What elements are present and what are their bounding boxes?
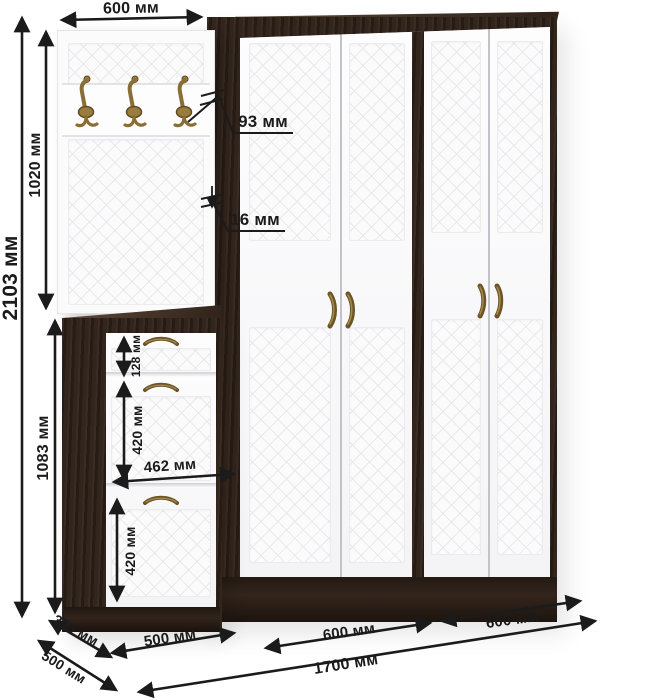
product-diagram: 600 мм 2103 мм 1020 мм 1083 мм 93 мм 16 …	[0, 0, 648, 700]
dim-panel-height: 1020 мм	[27, 132, 45, 197]
dim-panel-thickness: 16 мм	[230, 210, 280, 230]
dim-total-height: 2103 мм	[0, 235, 23, 320]
dim-drawer-height: 128 мм	[129, 335, 143, 377]
dim-hook-offset: 93 мм	[238, 112, 288, 132]
dim-flap1-height: 420 мм	[129, 405, 145, 454]
dim-cabinet-height: 1083 мм	[35, 415, 53, 480]
dim-flap2-height: 420 мм	[122, 526, 138, 575]
dim-panel-width: 600 мм	[103, 0, 159, 18]
dimension-lines	[0, 0, 648, 700]
